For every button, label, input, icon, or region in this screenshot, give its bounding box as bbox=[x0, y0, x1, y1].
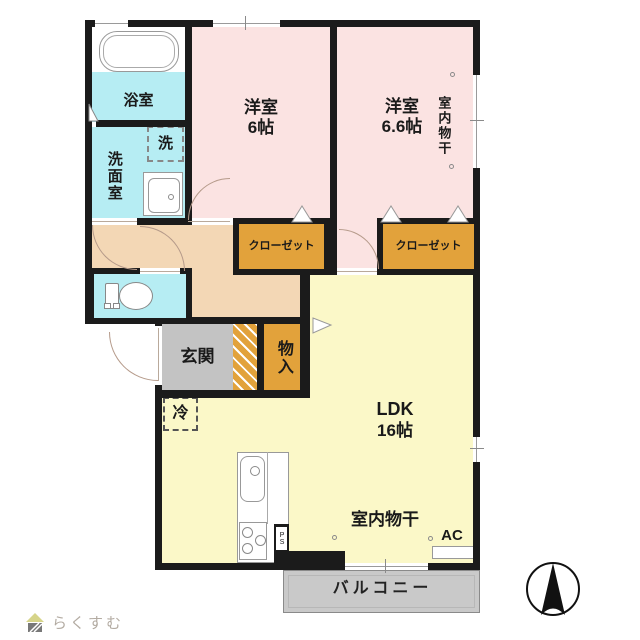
bedroom1-door-line bbox=[188, 221, 230, 222]
toilet-bowl bbox=[119, 282, 153, 310]
ldk-name: LDK bbox=[377, 399, 414, 419]
wall-kitchen-L-horizontal bbox=[289, 551, 345, 563]
logo-house-icon bbox=[24, 612, 46, 634]
ldk-label: LDK 16帖 bbox=[335, 399, 455, 441]
washroom-label: 洗面室 bbox=[105, 136, 123, 216]
logo-text: らくすむ bbox=[52, 615, 124, 633]
pipe-space: PS bbox=[276, 527, 287, 550]
window-line bbox=[345, 566, 428, 567]
kitchen-sink bbox=[240, 456, 265, 502]
genkan-label: 玄関 bbox=[162, 347, 233, 367]
storage-label: 物入 bbox=[273, 335, 292, 381]
toilet-door-line bbox=[140, 271, 180, 272]
ldk-size: 16帖 bbox=[377, 421, 413, 440]
ldk-drying-label: 室内物干 bbox=[325, 510, 445, 530]
ldk-drying-hook-left bbox=[332, 535, 337, 540]
fridge-label: 冷 bbox=[172, 405, 188, 424]
window-tick bbox=[470, 120, 484, 121]
washing-machine-space: 洗 bbox=[147, 126, 184, 162]
bedroom1-size: 6帖 bbox=[248, 118, 274, 137]
window-tick bbox=[385, 559, 386, 573]
compass-icon bbox=[520, 556, 590, 626]
ldk-drying-hook-right bbox=[428, 536, 433, 541]
balcony-label: バルコニー bbox=[300, 580, 465, 599]
stove-burner-1 bbox=[242, 527, 253, 538]
bedroom2-door-line bbox=[337, 271, 377, 272]
ac-label: AC bbox=[434, 527, 470, 545]
stove-burner-3 bbox=[255, 535, 266, 546]
wall bbox=[300, 268, 310, 398]
washer-label: 洗 bbox=[158, 135, 173, 153]
window-tick bbox=[245, 16, 246, 30]
stove-burner-2 bbox=[242, 543, 253, 554]
drying-hook-bottom bbox=[449, 164, 454, 169]
wall bbox=[85, 20, 480, 27]
wall bbox=[330, 27, 337, 275]
window-line bbox=[476, 437, 477, 462]
closet1: クローゼット bbox=[233, 218, 330, 275]
wall bbox=[428, 563, 480, 570]
closet1-label: クローゼット bbox=[249, 240, 315, 253]
wall bbox=[96, 120, 185, 127]
drying-hook-top bbox=[450, 72, 455, 77]
floorplan-canvas: バルコニー 洗 冷 PS クローゼット bbox=[0, 0, 640, 640]
shoe-cabinet bbox=[233, 324, 257, 390]
ac-unit bbox=[432, 546, 475, 559]
window-tick bbox=[470, 448, 484, 449]
entrance-door-line bbox=[158, 328, 159, 381]
bathtub bbox=[99, 31, 179, 72]
bath-label: 浴室 bbox=[92, 92, 185, 110]
wall bbox=[155, 563, 345, 570]
entrance-door-arc bbox=[109, 332, 158, 381]
window-line bbox=[476, 75, 477, 168]
refrigerator-space: 冷 bbox=[163, 397, 198, 431]
kitchen-counter-divider bbox=[267, 452, 268, 524]
wall bbox=[185, 27, 192, 225]
closet2: クローゼット bbox=[377, 218, 480, 275]
vanity-basin bbox=[148, 178, 180, 213]
closet2-label: クローゼット bbox=[396, 240, 462, 253]
wall bbox=[257, 324, 264, 390]
bedroom2-size: 6.6帖 bbox=[382, 117, 423, 136]
window-line bbox=[213, 23, 280, 24]
window-line bbox=[95, 23, 128, 24]
ps-label: PS bbox=[277, 532, 285, 546]
washroom-door-line bbox=[92, 221, 137, 222]
vanity-sink bbox=[143, 172, 183, 216]
bedroom2-name: 洋室 bbox=[385, 97, 419, 116]
bedroom2-drying-label: 室内物干 bbox=[436, 80, 451, 172]
bedroom1-label: 洋室 6帖 bbox=[192, 98, 330, 138]
bathtub-inner-rim bbox=[103, 35, 175, 68]
toilet-button-2 bbox=[113, 303, 120, 309]
vanity-drain bbox=[168, 194, 174, 200]
kitchen-faucet bbox=[250, 466, 260, 476]
wall bbox=[155, 390, 310, 398]
bedroom1-name: 洋室 bbox=[244, 98, 278, 117]
wall bbox=[137, 218, 188, 225]
toilet-button-1 bbox=[104, 303, 111, 309]
